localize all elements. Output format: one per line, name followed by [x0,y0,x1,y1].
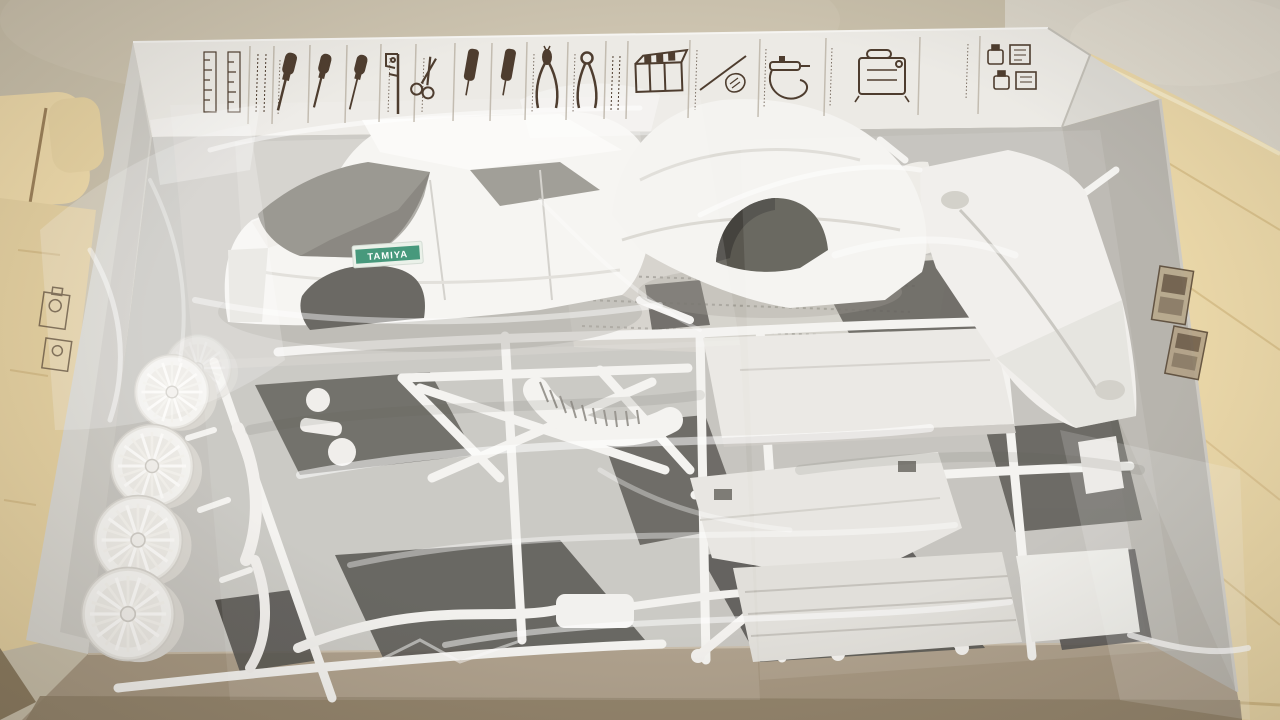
photo-model-kit-box: TAMIYA [0,0,1280,720]
scene-canvas: TAMIYA [0,0,1280,720]
